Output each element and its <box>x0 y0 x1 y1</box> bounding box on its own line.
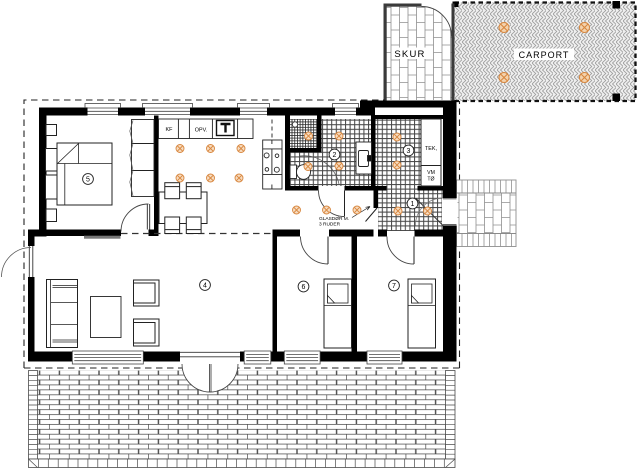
svg-text:KF: KF <box>166 127 174 133</box>
svg-text:1: 1 <box>411 201 415 208</box>
svg-text:6: 6 <box>302 284 306 291</box>
svg-text:5: 5 <box>86 177 90 184</box>
svg-text:7: 7 <box>392 283 396 290</box>
svg-text:TEK,: TEK, <box>425 146 437 152</box>
svg-text:3 RUDER: 3 RUDER <box>319 222 341 228</box>
svg-text:2: 2 <box>333 152 337 159</box>
svg-text:CARPORT: CARPORT <box>519 50 570 60</box>
svg-text:TØ: TØ <box>427 177 434 183</box>
svg-text:4: 4 <box>203 283 207 290</box>
svg-text:VM: VM <box>427 170 435 176</box>
svg-text:SKUR: SKUR <box>394 49 425 60</box>
svg-text:3: 3 <box>407 148 411 155</box>
svg-text:GLASDØR M.: GLASDØR M. <box>319 216 349 222</box>
svg-text:OPV.: OPV. <box>195 128 207 134</box>
